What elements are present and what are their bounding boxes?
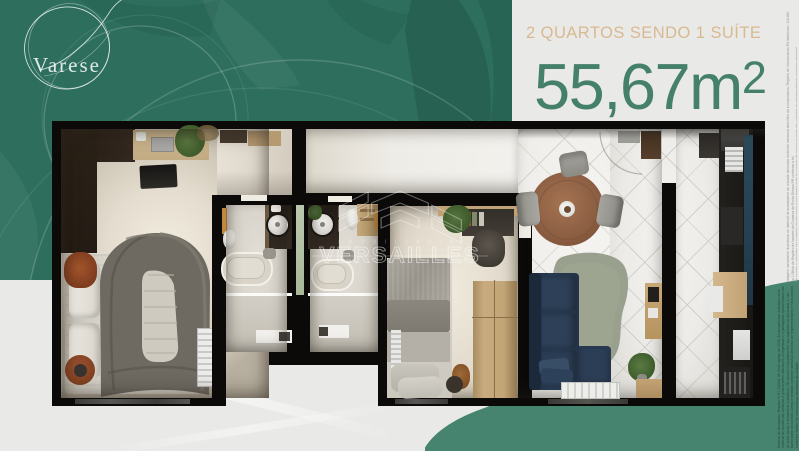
svg-text:Varese: Varese [33,53,101,77]
svg-text:VERSAILLES: VERSAILLES [319,243,480,268]
